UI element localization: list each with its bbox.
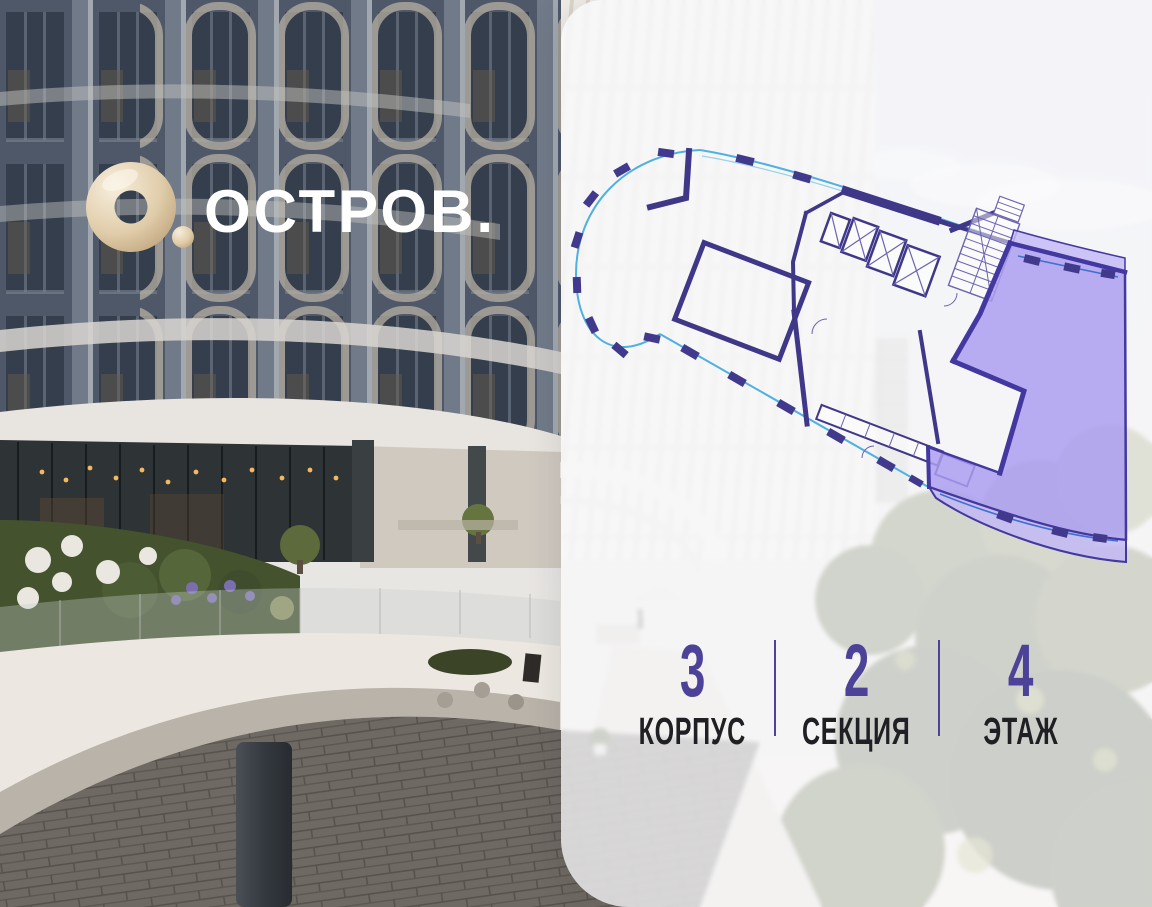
poster-root: ОСТРОВ. 3 КОРПУС 2 СЕКЦИЯ 4 ЭТАЖ [0, 0, 1152, 907]
legend-divider [774, 640, 776, 736]
legend-divider [938, 640, 940, 736]
floor-number: 4 [1008, 634, 1034, 708]
floor-label: ЭТАЖ [983, 712, 1058, 752]
logo-torus-icon [86, 162, 194, 252]
unit-legend: 3 КОРПУС 2 СЕКЦИЯ 4 ЭТАЖ [561, 634, 1152, 752]
logo-wordmark: ОСТРОВ. [204, 178, 496, 245]
building-label: КОРПУС [639, 712, 746, 752]
section-label: СЕКЦИЯ [802, 712, 910, 752]
legend-section: 2 СЕКЦИЯ [778, 634, 936, 752]
ostrov-logo[interactable]: ОСТРОВ. [82, 156, 522, 270]
legend-building: 3 КОРПУС [614, 634, 772, 752]
section-number: 2 [844, 634, 870, 708]
building-number: 3 [680, 634, 706, 708]
legend-floor: 4 ЭТАЖ [942, 634, 1100, 752]
